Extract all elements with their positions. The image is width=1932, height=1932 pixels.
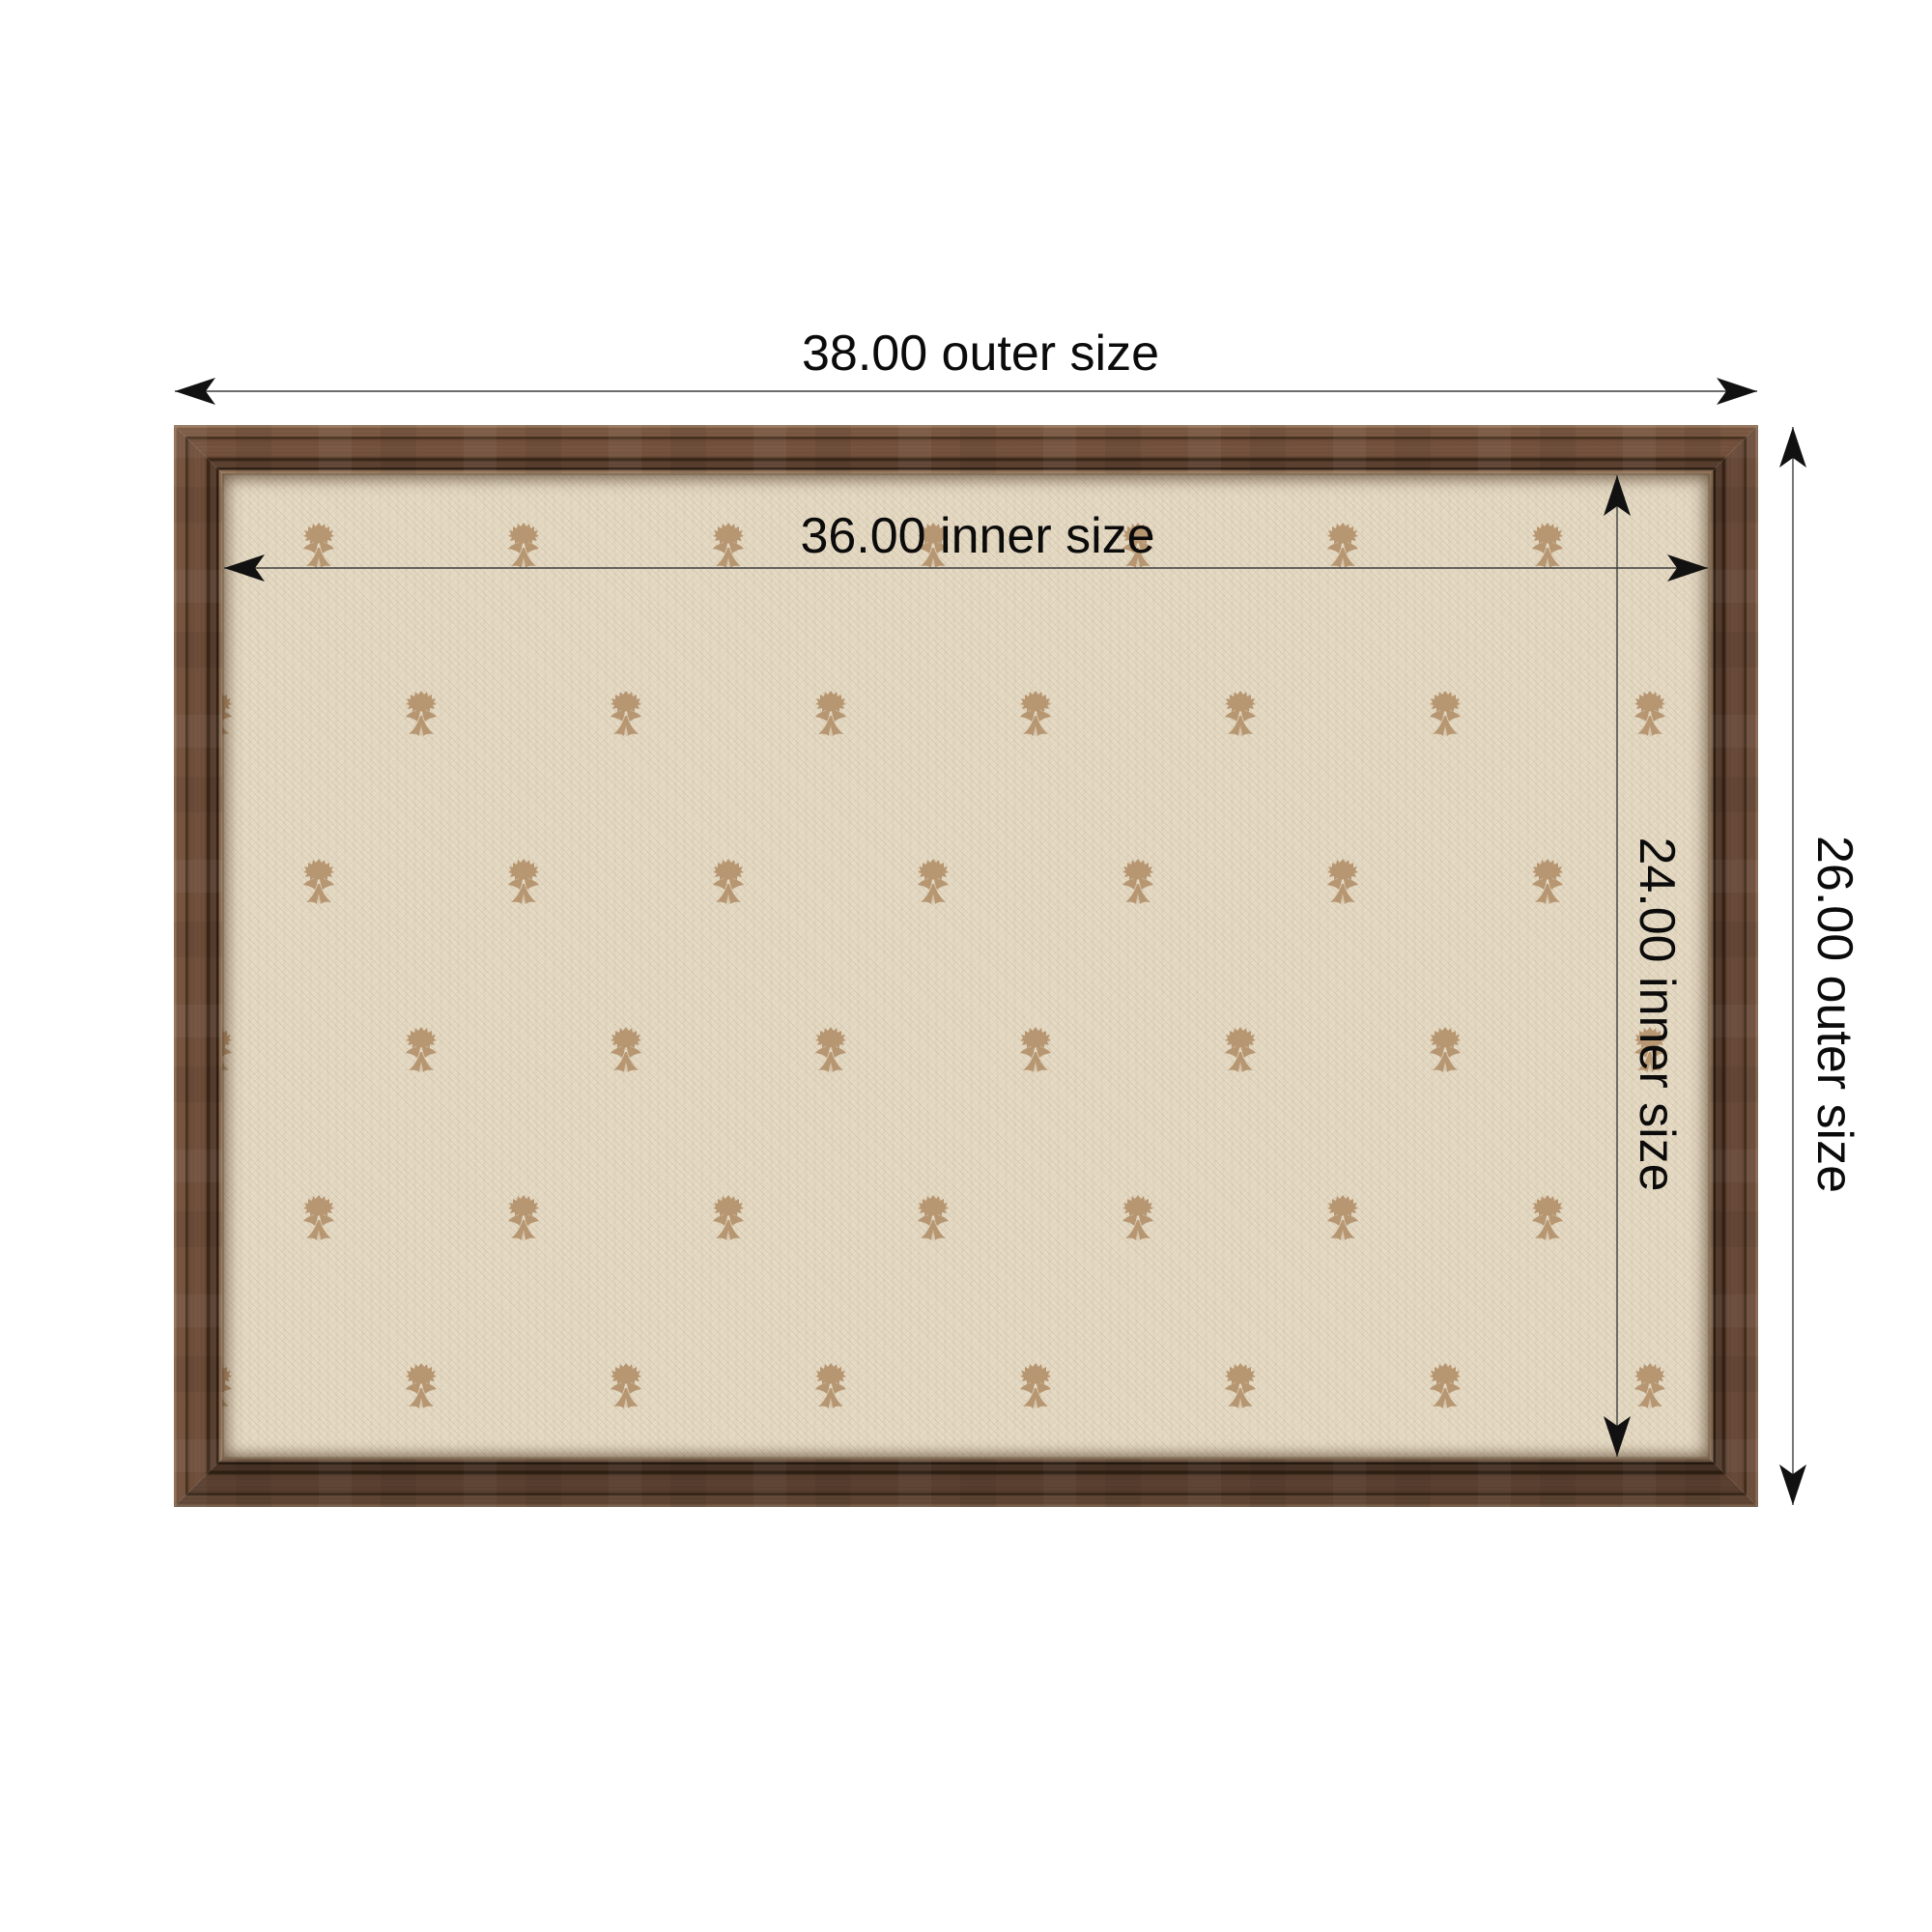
fabric-motif [222,1027,232,1074]
fabric-motif [508,1195,539,1242]
fabric-motif [815,691,846,738]
product-dimension-diagram: 38.00 outer size 36.00 inner size 26.00 … [0,0,1932,1932]
fabric-motif [611,691,641,738]
fabric-motif [918,859,949,906]
fabric-motif [1634,691,1665,738]
fabric-motif [1122,859,1153,906]
fabric-motif [406,1027,437,1074]
fabric-motif [1430,691,1461,738]
fabric-motif [1327,859,1358,906]
fabric-motif [222,1363,232,1410]
fabric-motif [1020,691,1051,738]
fabric-motif [1020,1027,1051,1074]
fabric-motif [1327,1195,1358,1242]
fabric-motif [222,691,232,738]
outer-width-label: 38.00 outer size [802,326,1159,384]
fabric-motif [1532,523,1563,570]
fabric-motif [303,859,334,906]
frame-top-rail [174,425,1758,473]
fabric-pattern [222,473,1710,1459]
fabric-motif [1634,1363,1665,1410]
fabric-motif [815,1363,846,1410]
fabric-motif [303,523,334,570]
fabric-motif [1430,1363,1461,1410]
fabric-motif [713,523,744,570]
fabric-motif [1225,1027,1256,1074]
frame-right-rail [1710,425,1758,1507]
fabric-motif [406,691,437,738]
inner-width-label: 36.00 inner size [800,508,1154,566]
fabric-motif [1225,1363,1256,1410]
fabric-motif [1430,1027,1461,1074]
fabric-motif [1532,1195,1563,1242]
fabric-motif [918,1195,949,1242]
fabric-motif [1327,523,1358,570]
fabric-motif [611,1363,641,1410]
outer-height-label: 26.00 outer size [1804,836,1862,1193]
fabric-motif [1122,1195,1153,1242]
inner-height-label: 24.00 inner size [1627,837,1685,1191]
fabric-motif [508,523,539,570]
fabric-motif [1020,1363,1051,1410]
frame-left-rail [174,425,222,1507]
fabric-motif [1225,691,1256,738]
fabric-motif [713,859,744,906]
fabric-motif [1532,859,1563,906]
fabric-motif [611,1027,641,1074]
fabric-motif [406,1363,437,1410]
fabric-motif [815,1027,846,1074]
framed-board [174,425,1758,1507]
fabric-motif [508,859,539,906]
linen-surface [222,473,1710,1459]
fabric-motif [303,1195,334,1242]
frame-bottom-rail [174,1459,1758,1507]
fabric-motif [713,1195,744,1242]
